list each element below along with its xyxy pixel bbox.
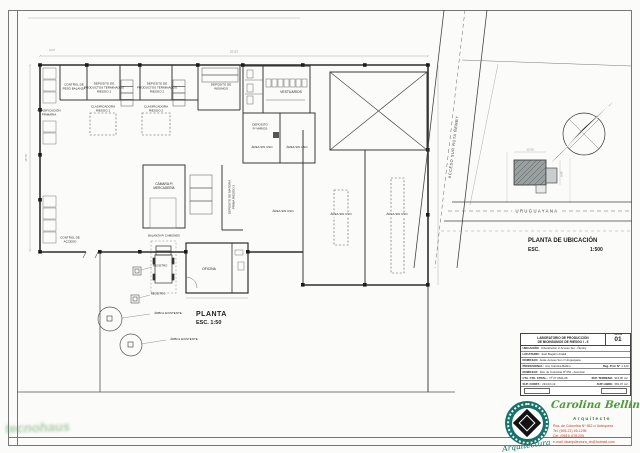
field-value: Urbanización c/ Acceso Sur - Ñemby [541, 346, 587, 350]
room-label-camara: CÁMARA P/ MERCADERÍA [153, 182, 174, 190]
site-building-footprint [514, 152, 560, 193]
field-label: LOCATARIO: [523, 352, 540, 356]
field-label: DOMICILIO: [523, 370, 539, 374]
field-label: SUP. CONST.: [523, 382, 541, 386]
architect-seal: Arquitectura [505, 401, 549, 445]
corner-watermark: tecnohaus [5, 419, 70, 436]
site-plan-title: PLANTA DE UBICACIÓN [528, 238, 597, 246]
field-value: Avda. Acceso Sur c/ Uruguayana [540, 358, 581, 362]
dimension-lines [28, 18, 438, 298]
room-label-deposito-varios: DEPOSITO P/ VARIOS [252, 123, 267, 131]
room-label-control-peso: CONTROL DE PESO BALANZA [63, 83, 86, 91]
north-arrow [551, 102, 613, 163]
room-label-area-sin-uso-5: ÁREA SIN USO [385, 213, 408, 217]
room-label-clasificadora-1: CLASIFICADORA RIESGO 1 [91, 105, 115, 113]
site-plan-scale-label: ESC. [528, 247, 540, 253]
columns [38, 63, 429, 286]
room-label-area-sin-uso-2: ÁREA SIN USO [286, 146, 307, 150]
cross-braced-area [330, 72, 427, 150]
floor-plan-exterior-walls [38, 65, 430, 285]
annotation-registro-2: REGISTRO [151, 292, 166, 295]
room-label-deposito-insumos: DEPOSITO DE INSUMOS [211, 83, 231, 91]
left-wall-racks [43, 68, 56, 243]
drawing-sheet: CONTROL DE PESO BALANZA DEPOSITO DE PROD… [0, 0, 640, 453]
field-label: DOMICILIO: [523, 358, 539, 362]
dimension-top-left: 2,07 [49, 49, 55, 53]
field-label-2: SUP. LIBRE: [597, 382, 613, 386]
field-value: Arq. Carolina Bellino [545, 364, 571, 368]
office-block [186, 243, 248, 293]
field-label-2: SUP. TERRENO: [591, 376, 613, 380]
dimension-left: 18,70 [25, 154, 29, 162]
dimension-top: 27,07 [230, 50, 238, 54]
street-name-label: URUGUAYANA [515, 208, 560, 213]
floor-plan-title: PLANTA [196, 311, 227, 320]
field-label: CTA. CTE. CTRAL.: [523, 376, 548, 380]
signature-box-right [601, 388, 627, 395]
drain-registers [131, 267, 152, 303]
equipment-zones [90, 113, 404, 293]
field-value: Juan Bogarín Airaldi [541, 352, 566, 356]
room-label-deposito-terminados-1: DEPOSITO DE PRODUCTOS TERMINADOS RIESGO … [84, 82, 124, 93]
room-label-control-acceso: CONTROL DE ACCESO [60, 236, 80, 244]
annotation-arbol-1: ÁRBOL EXISTENTE [154, 312, 182, 316]
field-value-2: 916,00 m2. [615, 376, 629, 380]
field-value-2: 681,97 m2. [615, 382, 629, 386]
room-label-vestuarios: VESTUARIOS [280, 90, 302, 94]
title-block-signature-row [521, 387, 630, 395]
site-boundaries [18, 252, 455, 392]
room-label-clasificacion-primaria: CLASIFICACIÓN PRIMARIA [37, 109, 60, 117]
architect-email: e-mail: bkarquitectura_cb@hotmail.com [553, 440, 615, 445]
field-value-2: 2.120 [622, 364, 629, 368]
project-title-line2: DE BIOINSUMOS DE RIESGO I - II [521, 340, 605, 344]
annotation-arbol-2: ÁRBOL EXISTENTE [170, 338, 198, 342]
field-value: 234,03 m2. [542, 382, 556, 386]
room-label-oficina: OFICINA [202, 267, 216, 271]
title-block: LABORATORIO DE PRODUCCIÓN DE BIOINSUMOS … [520, 333, 631, 396]
site-dimension-width: 12,05 [527, 148, 534, 151]
project-title: LABORATORIO DE PRODUCCIÓN DE BIOINSUMOS … [521, 334, 605, 345]
field-label-2: Reg. Prof. Nº [603, 364, 620, 368]
field-label: PROFESIONAL: [523, 364, 544, 368]
room-label-area-sin-uso-1: ÁREA SIN USO [251, 146, 272, 150]
lockers-and-fixtures [245, 70, 307, 104]
signature-box-left [524, 388, 550, 395]
field-value: Nº 27-0631-05 [549, 376, 567, 380]
field-value: Rca. de Colombia Nº 652 - Asunción [540, 370, 585, 374]
site-plan-scale-value: 1:500 [590, 247, 603, 253]
site-plan-roads [414, 10, 632, 268]
room-label-clasificadora-2: CLASIFICADORA RIESGO 2 [144, 105, 168, 113]
architect-contact: Rca. de Colombia Nº 652 c/ Antequera Tel… [553, 424, 615, 446]
architect-title: Arquitecto [551, 416, 633, 421]
title-block-header: LABORATORIO DE PRODUCCIÓN DE BIOINSUMOS … [521, 334, 630, 346]
sheet-number-cell: LÁMINA 01 [605, 334, 630, 345]
hatch-block [273, 132, 279, 138]
room-label-area-sin-uso-4: ÁREA SIN USO [329, 213, 352, 217]
field-label: UBICACIÓN: [523, 346, 540, 350]
annotation-balanza: BALANZA P/ CAMIONES [148, 234, 180, 237]
annotation-registro-1: REGISTRO [153, 264, 168, 267]
architect-name: Carolina Bellino [550, 399, 633, 411]
site-dimension-depth: 8,45 [560, 171, 563, 176]
room-label-materia-prima: DEPOSITO DE MATERIA PRIMA RIESGO 3 [228, 180, 236, 214]
floor-plan-scale: ESC. 1:50 [196, 320, 221, 327]
room-label-deposito-terminados-2: DEPOSITO DE PRODUCTOS TERMINADOS RIESGO … [137, 82, 177, 93]
sheet-number: 01 [614, 337, 621, 344]
room-label-area-sin-uso-3: ÁREA SIN USO [272, 210, 293, 214]
